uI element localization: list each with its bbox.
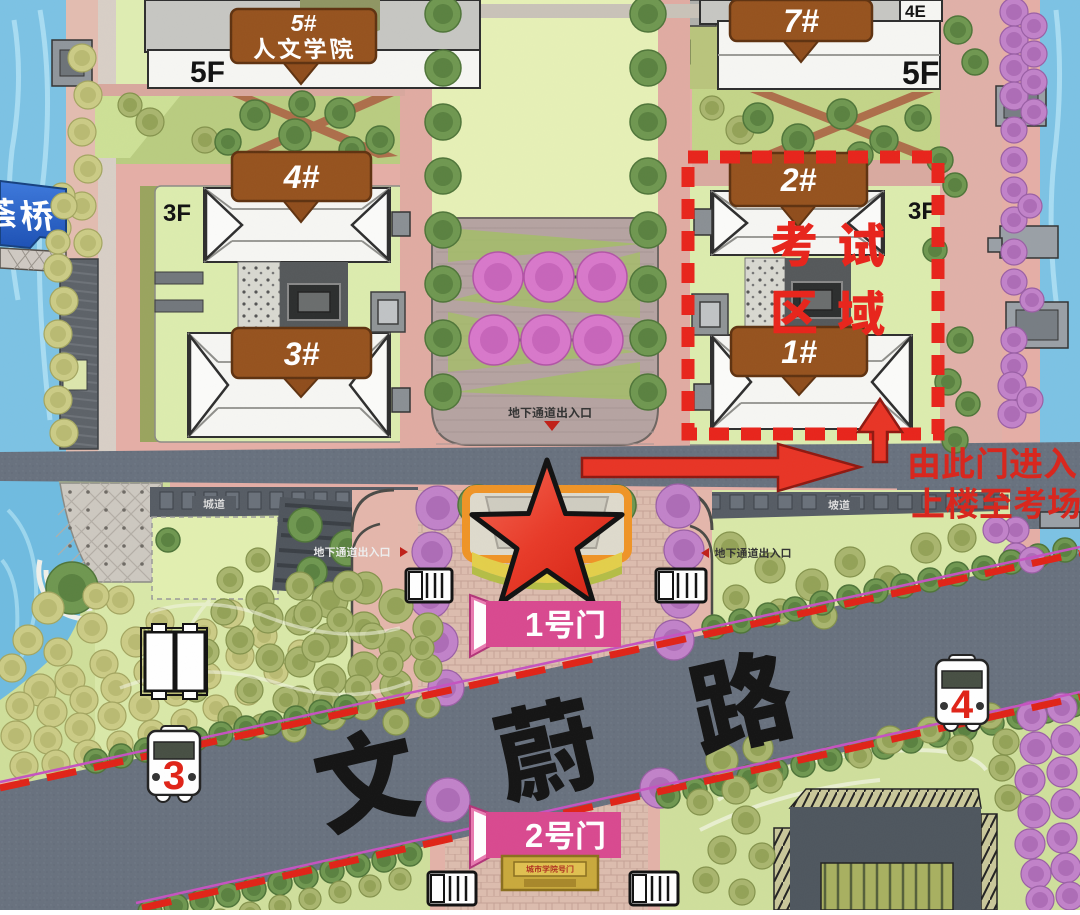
svg-text:3: 3 — [163, 754, 185, 798]
svg-text:4: 4 — [951, 683, 974, 727]
svg-text:3#: 3# — [284, 336, 320, 372]
svg-text:1#: 1# — [781, 334, 817, 370]
svg-text:5F: 5F — [190, 56, 225, 89]
svg-text:2#: 2# — [780, 162, 817, 198]
svg-text:5#: 5# — [291, 10, 317, 36]
svg-text:5F: 5F — [902, 55, 939, 91]
svg-text:3F: 3F — [163, 200, 191, 227]
svg-text:4#: 4# — [283, 159, 320, 195]
svg-text:2: 2 — [525, 817, 543, 854]
svg-text:4E: 4E — [905, 2, 926, 21]
svg-text:7#: 7# — [783, 3, 819, 39]
svg-text:1: 1 — [525, 606, 543, 643]
